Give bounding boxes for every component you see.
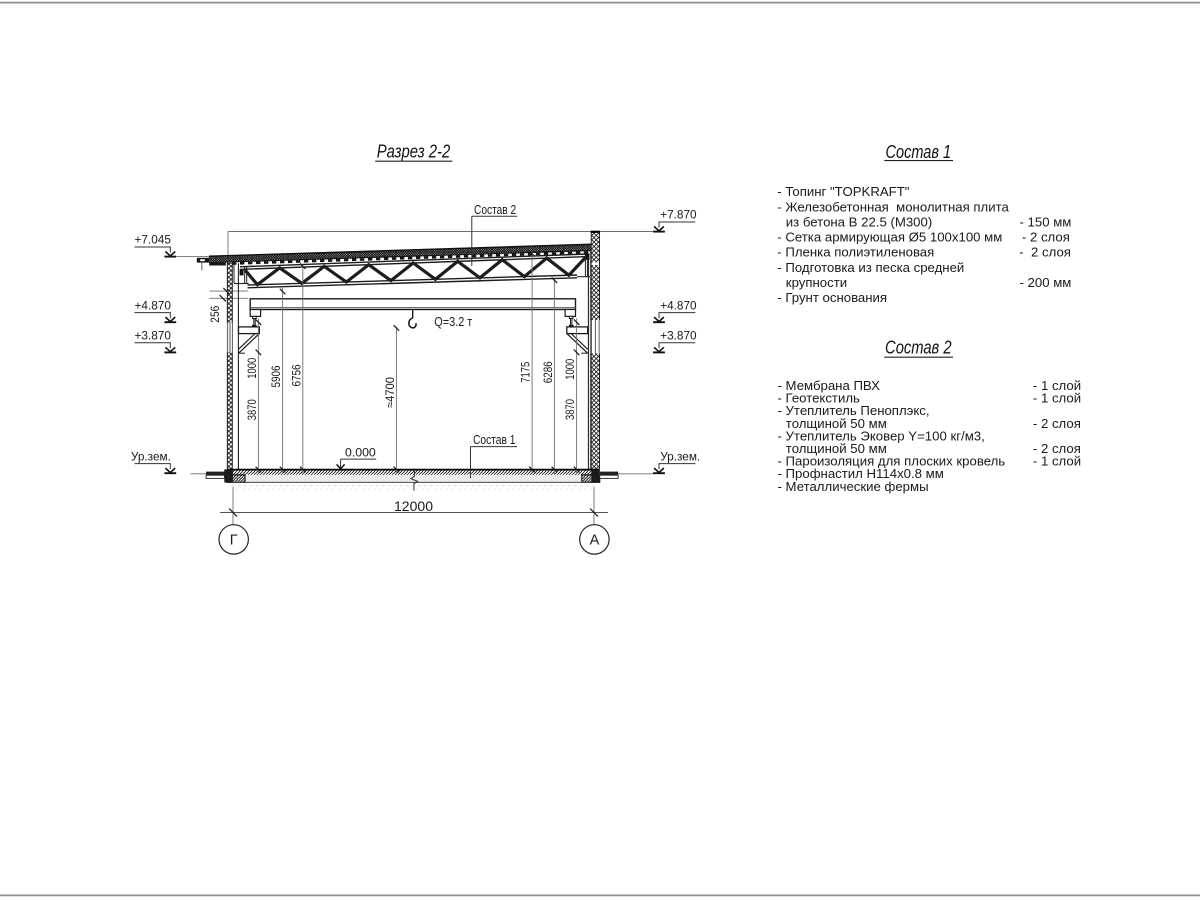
svg-text:- Металлические фермы: - Металлические фермы (778, 479, 929, 494)
svg-text:1000: 1000 (563, 358, 577, 379)
svg-text:- 200 мм: - 200 мм (1020, 275, 1072, 290)
svg-text:Состав 1: Состав 1 (886, 142, 952, 162)
svg-text:256: 256 (208, 305, 222, 322)
svg-text:Разрез 2-2: Разрез 2-2 (377, 141, 451, 162)
svg-text:крупности: крупности (786, 275, 847, 290)
svg-text:6756: 6756 (289, 364, 303, 386)
svg-text:- Грунт основания: - Грунт основания (777, 290, 887, 305)
svg-text:- Топинг "TOPKRAFT": - Топинг "TOPKRAFT" (777, 184, 909, 199)
svg-text:12000: 12000 (394, 499, 433, 514)
svg-text:Ур.зем.: Ур.зем. (131, 449, 171, 463)
svg-text:- 2 слоя: - 2 слоя (1019, 245, 1071, 260)
svg-text:+3.870: +3.870 (660, 329, 697, 343)
svg-text:из бетона В 22.5 (М300): из бетона В 22.5 (М300) (786, 214, 932, 229)
svg-text:- Железобетонная монолитная п: - Железобетонная монолитная плита (777, 199, 1009, 214)
svg-text:Q=3.2 т: Q=3.2 т (434, 315, 472, 329)
svg-text:- Подготовка из песка средней: - Подготовка из песка средней (777, 260, 964, 275)
svg-text:7175: 7175 (519, 362, 533, 383)
svg-text:+3.870: +3.870 (134, 329, 171, 343)
svg-text:- 150 мм: - 150 мм (1020, 214, 1072, 229)
svg-text:- 2 слоя: - 2 слоя (1022, 230, 1070, 245)
svg-text:А: А (590, 533, 600, 549)
svg-text:Состав 1: Состав 1 (473, 432, 516, 447)
svg-text:- 2 слоя: - 2 слоя (1033, 416, 1081, 431)
svg-text:+7.045: +7.045 (134, 233, 171, 247)
svg-text:- 1 слой: - 1 слой (1033, 391, 1081, 406)
svg-text:Г: Г (230, 533, 238, 549)
svg-text:1000: 1000 (245, 358, 259, 379)
svg-text:Ур.зем.: Ур.зем. (660, 449, 700, 463)
svg-text:Состав 2: Состав 2 (474, 202, 516, 217)
svg-text:5906: 5906 (269, 365, 283, 387)
svg-text:- Пленка полиэтиленовая: - Пленка полиэтиленовая (777, 245, 934, 260)
svg-text:≈4700: ≈4700 (383, 377, 397, 408)
svg-text:- Сетка армирующая Ø5 100х100: - Сетка армирующая Ø5 100х100 мм (777, 230, 1002, 245)
svg-text:+4.870: +4.870 (660, 298, 697, 312)
svg-text:+7.870: +7.870 (660, 208, 697, 222)
svg-text:3870: 3870 (563, 399, 577, 420)
svg-text:- 1 слой: - 1 слой (1033, 454, 1081, 469)
svg-text:3870: 3870 (245, 399, 259, 420)
svg-text:0.000: 0.000 (345, 445, 376, 459)
svg-text:Состав 2: Состав 2 (885, 338, 952, 358)
svg-text:6286: 6286 (541, 361, 555, 383)
svg-text:+4.870: +4.870 (134, 298, 171, 312)
